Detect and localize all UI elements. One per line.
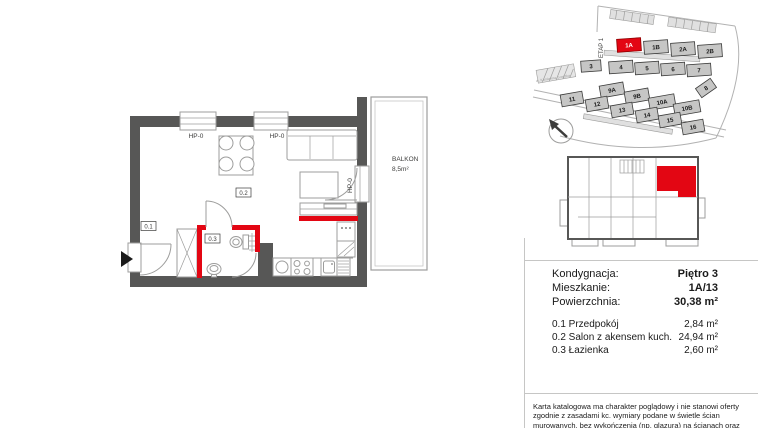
room-number-bath: 0.3 [205,234,220,243]
key-plan [560,157,705,246]
info-value: 1A/13 [689,281,718,295]
window [180,112,216,130]
room-area: 2,60 m² [684,344,718,357]
balcony-name-label: BALKON [392,156,419,163]
site-building-2B: 2B [698,44,723,59]
info-label: Kondygnacja: [552,267,619,281]
svg-text:0.2: 0.2 [239,191,248,197]
room-area: 2,84 m² [684,318,718,331]
catalog-card-page: HP-0 HP-0 HP-0 BALKON 8,5m² 0.1 0.2 0.3 [0,0,760,428]
svg-text:1A: 1A [625,43,634,50]
site-building-6: 6 [661,62,686,76]
site-building-5: 5 [635,61,660,75]
svg-text:0.3: 0.3 [208,237,217,243]
site-building-15: 15 [658,112,682,128]
apartment-floor-plan: HP-0 HP-0 HP-0 BALKON 8,5m² 0.1 0.2 0.3 [121,97,427,287]
radiator [249,233,255,252]
vertical-divider [524,238,525,428]
stove [291,258,313,276]
north-arrow-icon [555,126,567,137]
installation-shaft [258,243,273,276]
chair [240,136,254,150]
site-building-8: 8 [695,78,716,97]
room-number-salon: 0.2 [236,188,251,197]
site-building-9B: 9B [624,88,650,104]
kitchen-counter [300,203,357,215]
room-row: 0.3 Łazienka 2,60 m² [552,344,718,357]
entrance-door [128,243,171,275]
kitchen-red-accent [299,216,358,221]
plan-graphics: HP-0 HP-0 HP-0 BALKON 8,5m² 0.1 0.2 0.3 [0,0,760,428]
horizontal-divider-top [524,260,758,261]
bathroom-walls [197,225,260,278]
chair [219,157,233,171]
dish-drainer [337,258,350,276]
site-building-1A: 1A [617,38,642,53]
site-building-4: 4 [609,60,634,74]
balcony [371,97,427,270]
bathroom-door [206,201,232,227]
room-name: 0.2 Salon z akensem kuch. [552,331,672,344]
dining-table [219,136,254,175]
desk [300,172,338,198]
site-building-13: 13 [610,102,634,118]
svg-text:1B: 1B [652,45,661,52]
shower [232,253,256,277]
washbasin [207,264,221,278]
site-building-12: 12 [585,96,609,112]
info-row-floor: Kondygnacja: Piętro 3 [552,267,718,281]
room-number-hall: 0.1 [141,222,156,231]
svg-text:2A: 2A [679,47,688,54]
window2-label: HP-0 [270,133,285,140]
chair [240,157,254,171]
unit-info-panel: Kondygnacja: Piętro 3 Mieszkanie: 1A/13 … [552,267,718,357]
info-row-area: Powierzchnia: 30,38 m² [552,295,718,309]
svg-text:0.1: 0.1 [144,225,153,231]
washing-machine [273,258,291,276]
wardrobe [177,229,197,277]
room-name: 0.1 Przedpokój [552,318,619,331]
toilet [230,235,249,249]
site-building-7: 7 [687,63,712,77]
balcony-area-label: 8,5m² [392,166,409,173]
site-building-11: 11 [560,91,584,107]
info-value: 30,38 m² [674,295,718,309]
site-building-3: 3 [581,60,602,72]
disclaimer-text: Karta katalogowa ma charakter poglądowy … [533,402,759,428]
info-row-unit: Mieszkanie: 1A/13 [552,281,718,295]
sofa [287,130,357,160]
site-building-14: 14 [635,107,659,123]
key-plan-balcony [666,239,698,246]
site-plan: 1A 1B 2A 2B 3 4 5 6 7 9A [533,6,739,148]
room-list: 0.1 Przedpokój 2,84 m² 0.2 Salon z akens… [552,318,718,357]
svg-text:2B: 2B [706,49,715,56]
kitchen-sink [321,258,337,276]
balcony-door-label: HP-0 [347,178,354,193]
info-label: Mieszkanie: [552,281,610,295]
info-label: Powierzchnia: [552,295,620,309]
room-name: 0.3 Łazienka [552,344,609,357]
key-plan-balcony [603,239,635,246]
chair [219,136,233,150]
window1-label: HP-0 [189,133,204,140]
compass-icon [549,119,573,143]
info-value: Piętro 3 [678,267,718,281]
fridge [337,241,355,257]
kitchen-cabinet [337,222,355,241]
site-building-2A: 2A [671,42,696,57]
room-row: 0.2 Salon z akensem kuch. 24,94 m² [552,331,718,344]
room-row: 0.1 Przedpokój 2,84 m² [552,318,718,331]
horizontal-divider-bottom [524,393,758,394]
site-building-1B: 1B [644,40,669,55]
etap-label: ETAP 1 [599,37,605,58]
window [254,112,288,130]
site-building-9A: 9A [599,82,625,98]
room-area: 24,94 m² [679,331,718,344]
